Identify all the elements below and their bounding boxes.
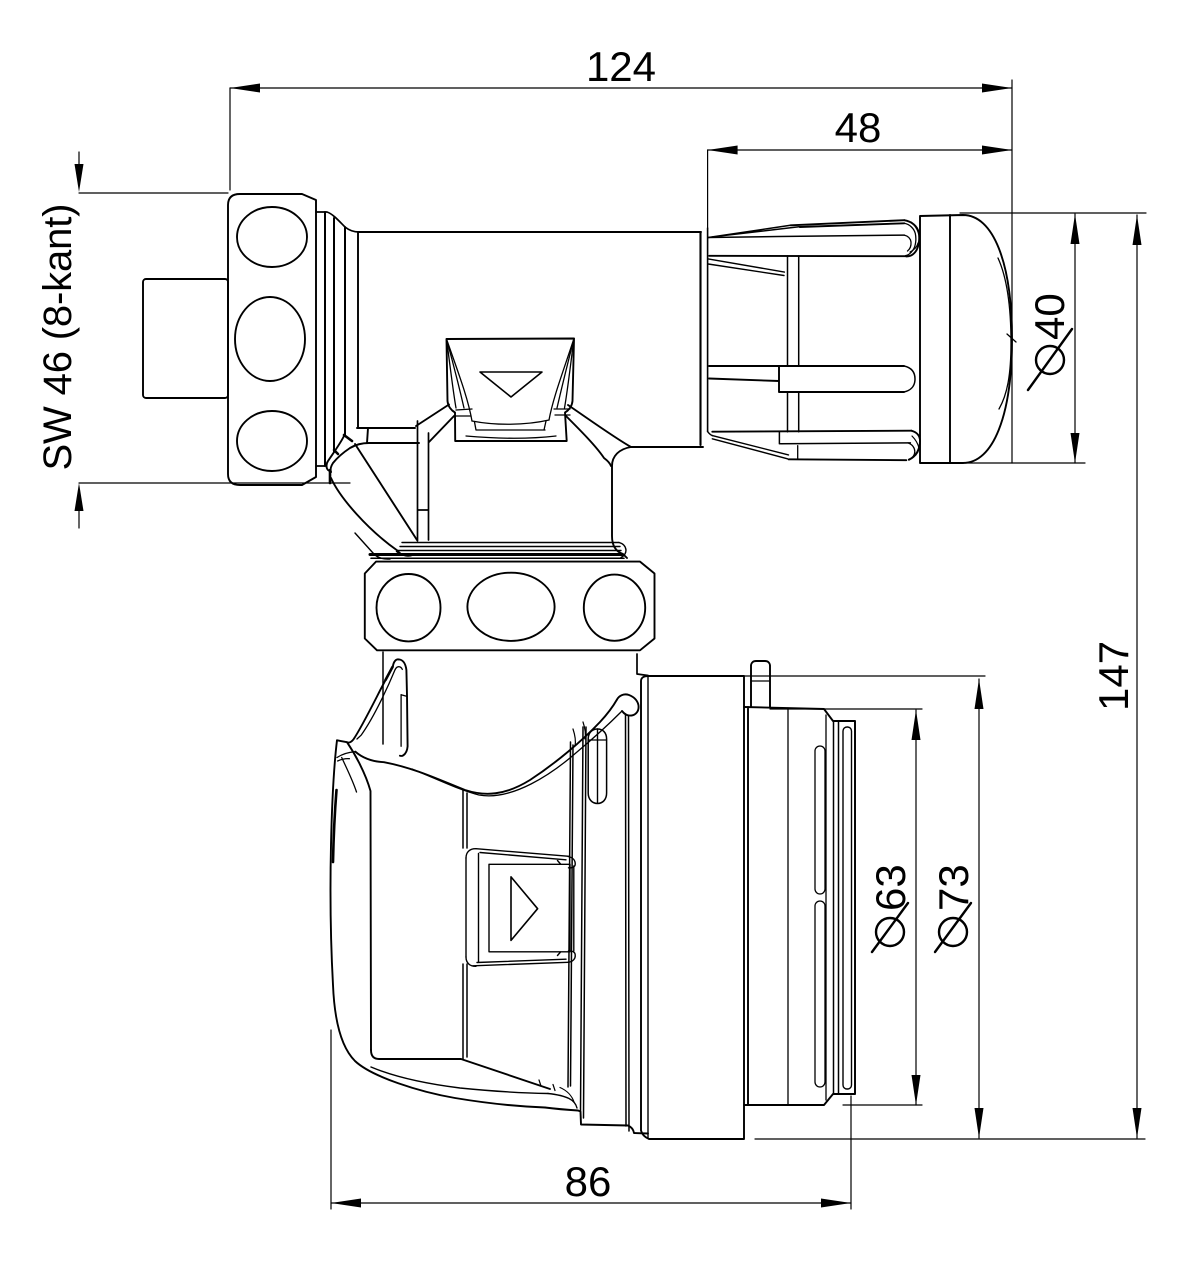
svg-text:48: 48 — [835, 104, 882, 151]
svg-text:63: 63 — [867, 864, 914, 911]
svg-text:86: 86 — [565, 1158, 612, 1205]
svg-text:SW 46 (8-kant): SW 46 (8-kant) — [36, 204, 80, 471]
svg-text:40: 40 — [1026, 293, 1073, 340]
svg-text:147: 147 — [1090, 641, 1137, 711]
svg-text:73: 73 — [930, 864, 977, 911]
svg-text:124: 124 — [586, 43, 656, 90]
